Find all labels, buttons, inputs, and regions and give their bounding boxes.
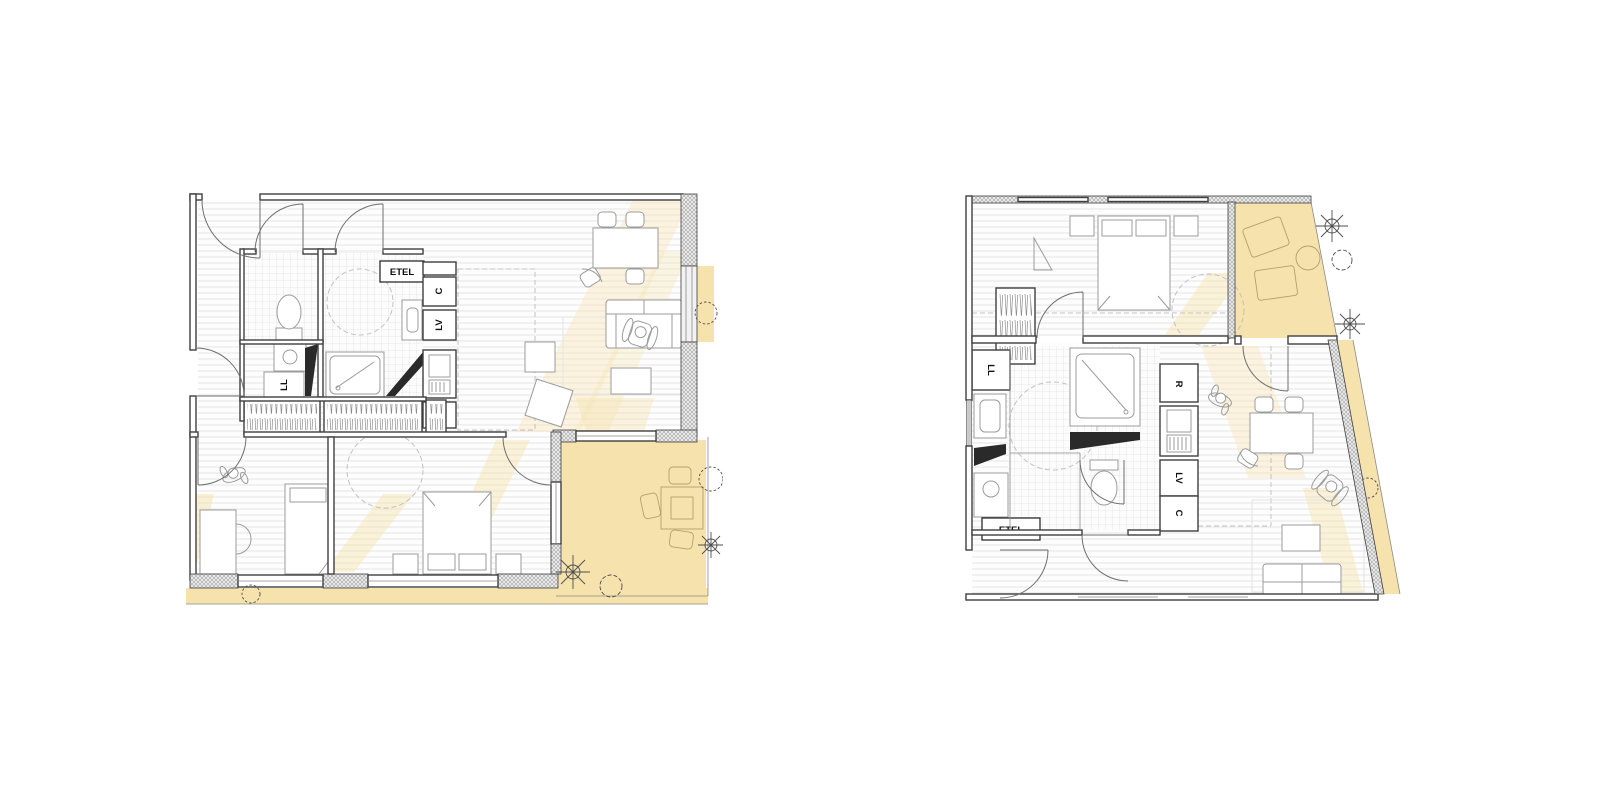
floor-plan-right-drawing: LL ETEL R LV C bbox=[958, 188, 1408, 618]
plant-icon bbox=[1332, 250, 1352, 270]
floor-plan-left-drawing: LL ETEL C LV R bbox=[178, 182, 723, 612]
shower-tray bbox=[1070, 348, 1140, 426]
armchair bbox=[525, 342, 555, 372]
wardrobes bbox=[244, 400, 446, 434]
svg-text:LL: LL bbox=[279, 379, 290, 391]
kitchen-units: R LV C bbox=[1160, 364, 1198, 531]
toilet bbox=[1090, 460, 1118, 505]
washing-machine: LL bbox=[972, 350, 1010, 390]
plant-icon bbox=[1335, 309, 1365, 339]
sofa bbox=[606, 300, 682, 348]
floor-plan-right: LL ETEL R LV C bbox=[958, 188, 1408, 618]
shower-room-washbasin bbox=[402, 300, 422, 340]
floor-plan-left: LL ETEL C LV R bbox=[178, 182, 723, 612]
cooker-label: C bbox=[1173, 510, 1184, 517]
dishwasher-label: LV bbox=[1173, 472, 1184, 484]
shower-tray bbox=[326, 352, 384, 398]
laundry-washbasin bbox=[974, 473, 1008, 517]
coffee-table bbox=[611, 368, 651, 394]
cooker-label: C bbox=[434, 287, 445, 294]
washbasin bbox=[974, 394, 1006, 438]
pantry-label: ETEL bbox=[390, 267, 414, 278]
toilet-room-tiled-floor bbox=[244, 252, 318, 340]
laundry-washbasin bbox=[274, 344, 306, 371]
toilet bbox=[276, 295, 302, 340]
washing-machine: LL bbox=[264, 372, 304, 397]
fridge-label: R bbox=[1173, 381, 1184, 388]
pantry-cupboard: ETEL bbox=[982, 518, 1040, 540]
plant-icon bbox=[556, 555, 590, 589]
svg-text:LL: LL bbox=[985, 364, 996, 376]
dishwasher-label: LV bbox=[434, 319, 445, 331]
plant-icon bbox=[1316, 210, 1348, 242]
single-bed bbox=[285, 484, 331, 574]
balcony bbox=[1235, 202, 1337, 338]
page-canvas: LL ETEL C LV R bbox=[0, 0, 1612, 806]
coffee-table bbox=[1282, 525, 1320, 551]
